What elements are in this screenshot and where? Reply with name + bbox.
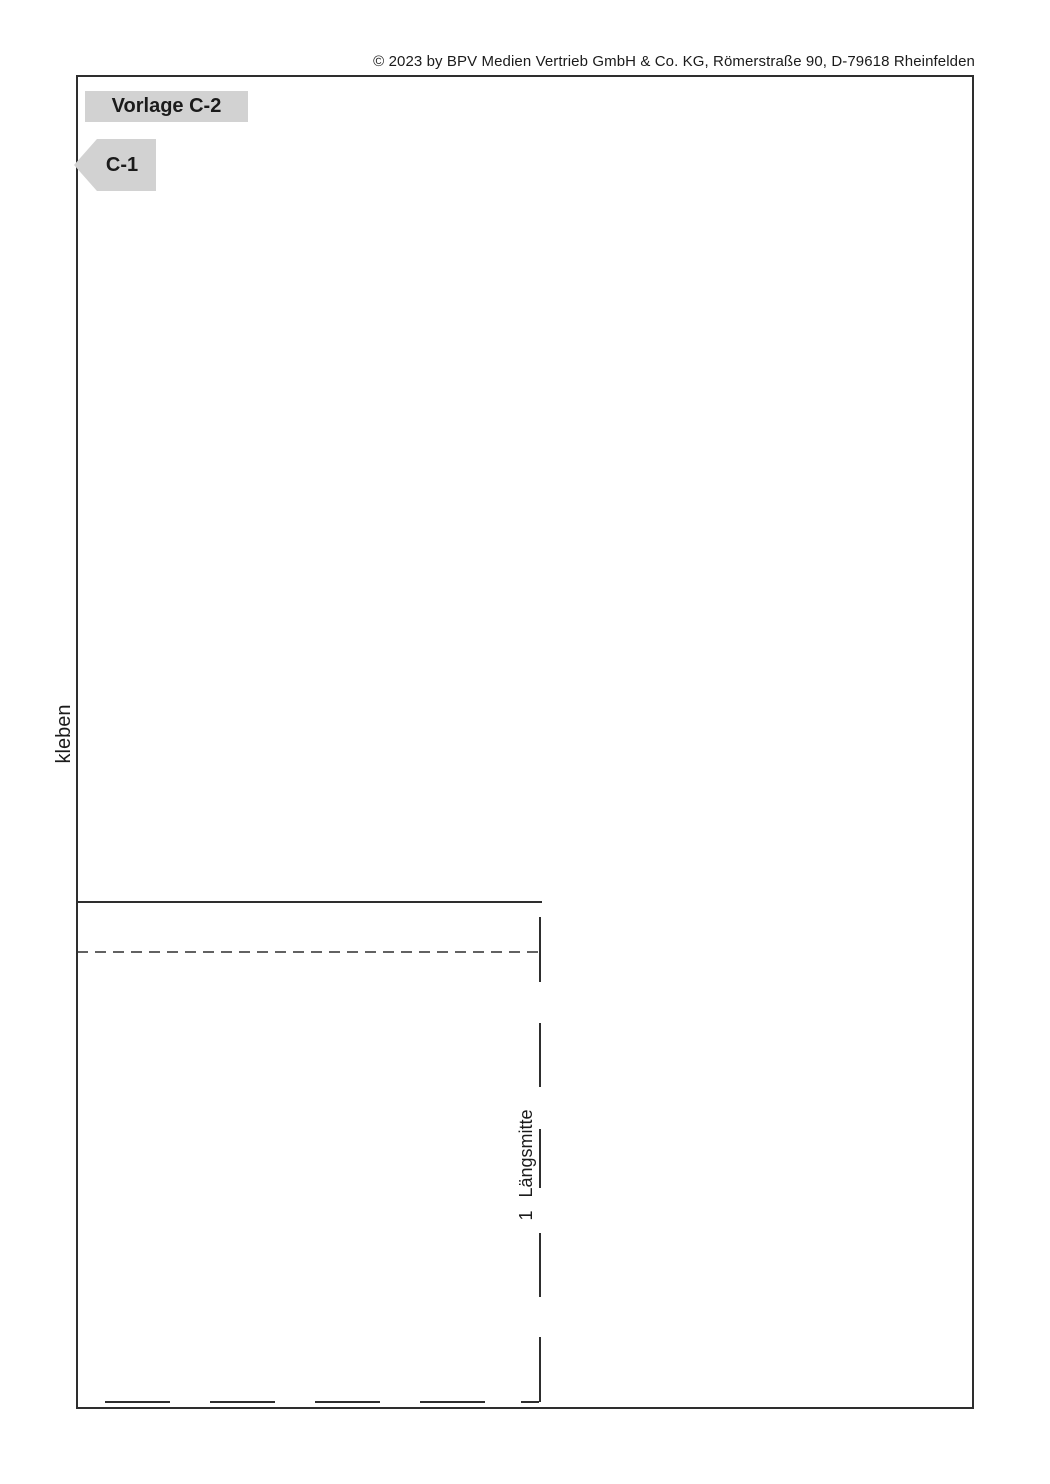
piece-label: C-1: [106, 154, 138, 177]
copyright-line: © 2023 by BPV Medien Vertrieb GmbH & Co.…: [373, 53, 975, 70]
template-page: © 2023 by BPV Medien Vertrieb GmbH & Co.…: [0, 0, 1050, 1484]
template-title-label: Vorlage C-2: [112, 95, 222, 118]
fold-number-label: 1: [516, 1211, 537, 1221]
lengthwise-center-label: 1 Längsmitte: [516, 1105, 536, 1225]
glue-edge-label: kleben: [53, 694, 75, 774]
fold-name-label: Längsmitte: [516, 1109, 537, 1197]
template-title-badge: Vorlage C-2: [85, 91, 248, 122]
